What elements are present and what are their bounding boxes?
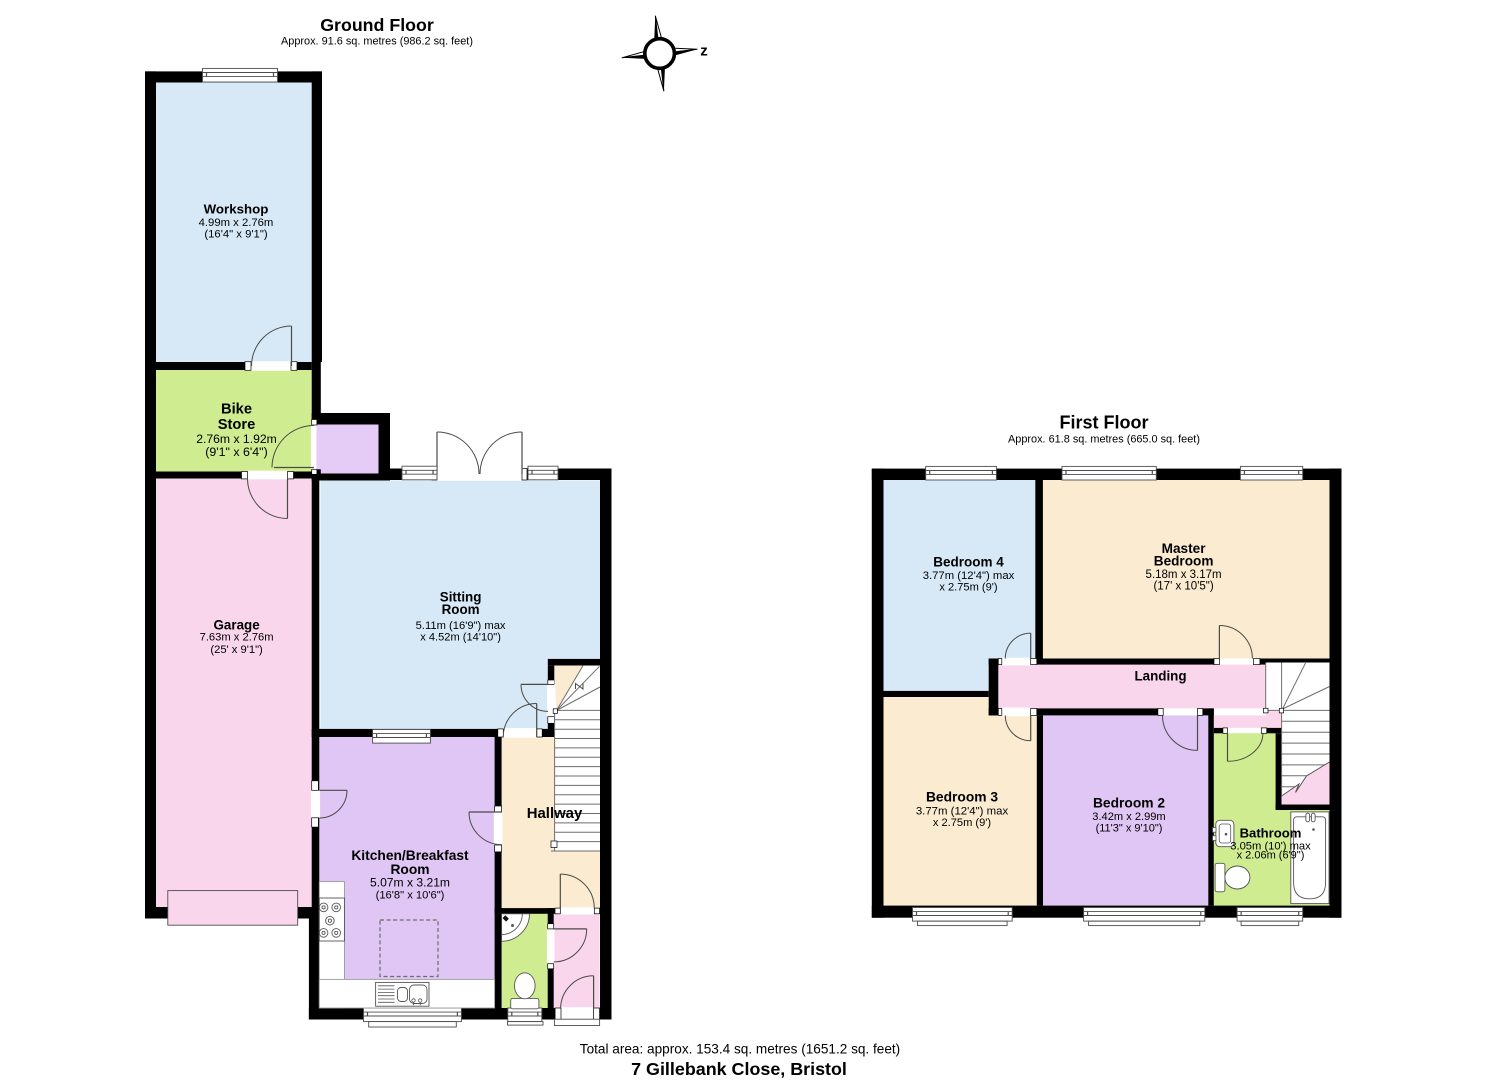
svg-text:x 4.52m (14'10"): x 4.52m (14'10") — [420, 631, 501, 643]
svg-text:(16'8" x 10'6"): (16'8" x 10'6") — [376, 890, 445, 902]
svg-text:Bedroom: Bedroom — [1154, 554, 1214, 569]
svg-text:Bedroom 3: Bedroom 3 — [926, 790, 998, 805]
svg-text:Room: Room — [442, 602, 480, 617]
svg-text:7 Gillebank Close, Bristol: 7 Gillebank Close, Bristol — [631, 1059, 847, 1079]
svg-text:(16'4" x 9'1"): (16'4" x 9'1") — [204, 228, 267, 240]
svg-text:Approx. 91.6 sq. metres (986.2: Approx. 91.6 sq. metres (986.2 sq. feet) — [281, 36, 473, 48]
svg-text:Landing: Landing — [1134, 669, 1186, 684]
svg-text:Garage: Garage — [214, 618, 260, 633]
svg-text:Approx. 61.8 sq. metres (665.0: Approx. 61.8 sq. metres (665.0 sq. feet) — [1008, 434, 1200, 446]
svg-text:x 2.75m (9'): x 2.75m (9') — [939, 582, 997, 594]
svg-text:Bathroom: Bathroom — [1240, 826, 1302, 841]
svg-text:5.11m (16'9") max: 5.11m (16'9") max — [416, 620, 506, 632]
svg-text:Store: Store — [218, 417, 256, 433]
svg-text:2.76m x 1.92m: 2.76m x 1.92m — [196, 432, 277, 446]
svg-text:z: z — [700, 43, 708, 60]
svg-text:Ground Floor: Ground Floor — [320, 15, 434, 35]
svg-text:3.77m (12'4") max: 3.77m (12'4") max — [923, 570, 1015, 582]
svg-text:x 2.75m (9'): x 2.75m (9') — [933, 817, 991, 829]
svg-text:7.63m x 2.76m: 7.63m x 2.76m — [200, 631, 274, 643]
svg-text:3.77m (12'4") max: 3.77m (12'4") max — [916, 805, 1009, 817]
svg-text:(25' x 9'1"): (25' x 9'1") — [210, 644, 263, 656]
svg-text:4.99m x 2.76m: 4.99m x 2.76m — [199, 217, 274, 229]
svg-text:5.18m x 3.17m: 5.18m x 3.17m — [1146, 569, 1222, 581]
svg-text:5.07m x 3.21m: 5.07m x 3.21m — [370, 875, 450, 889]
svg-text:3.42m x 2.99m: 3.42m x 2.99m — [1092, 811, 1165, 823]
svg-text:Bedroom 2: Bedroom 2 — [1093, 796, 1165, 811]
svg-text:First Floor: First Floor — [1060, 413, 1149, 433]
svg-text:Workshop: Workshop — [204, 202, 269, 217]
svg-text:(11'3" x 9'10"): (11'3" x 9'10") — [1096, 823, 1163, 835]
svg-text:Hallway: Hallway — [527, 806, 583, 822]
svg-text:(9'1" x 6'4"): (9'1" x 6'4") — [205, 445, 267, 459]
svg-text:Total area: approx. 153.4 sq.: Total area: approx. 153.4 sq. metres (16… — [580, 1042, 900, 1057]
svg-text:(17' x 10'5"): (17' x 10'5") — [1153, 581, 1213, 593]
svg-text:x 2.06m (6'9"): x 2.06m (6'9") — [1237, 850, 1305, 862]
svg-text:Bedroom 4: Bedroom 4 — [933, 555, 1004, 570]
svg-text:Bike: Bike — [221, 402, 252, 418]
